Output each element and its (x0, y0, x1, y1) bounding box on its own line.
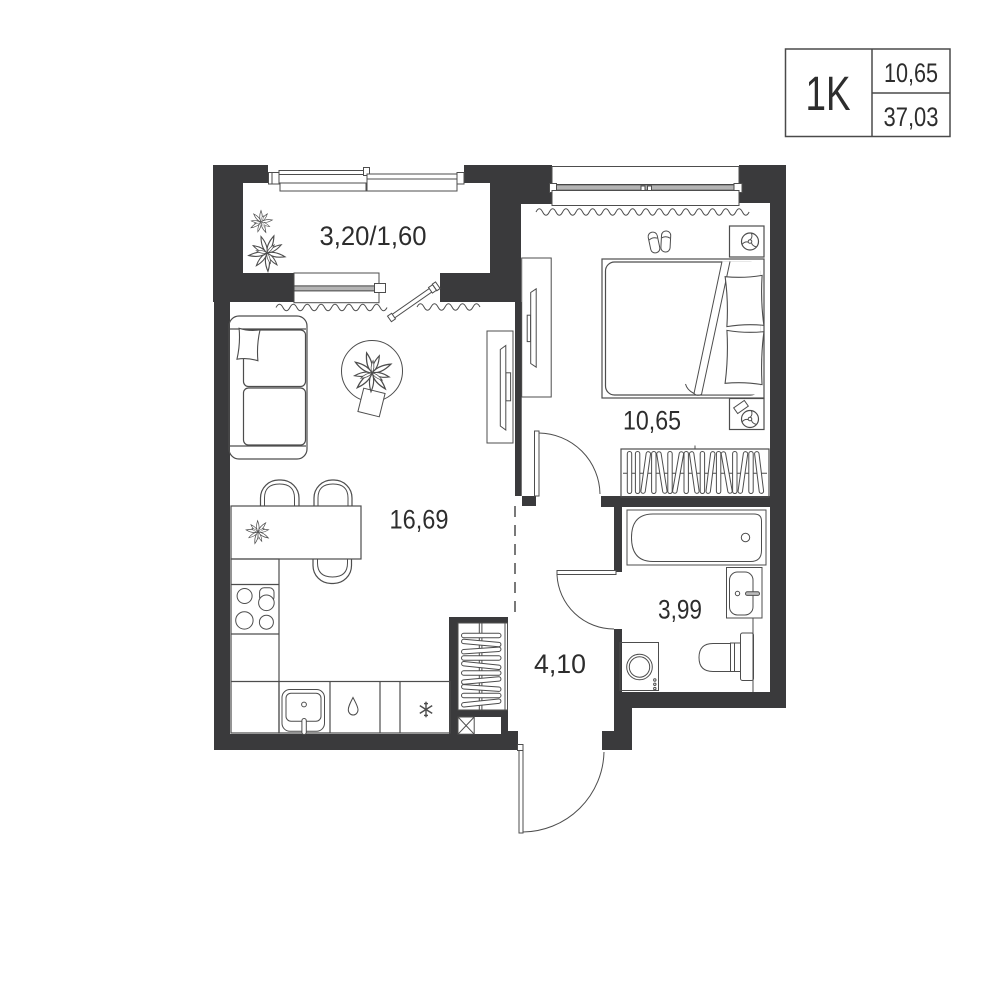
svg-text:3,99: 3,99 (658, 595, 702, 625)
svg-text:10,65: 10,65 (884, 58, 938, 88)
svg-text:4,10: 4,10 (534, 649, 586, 679)
svg-text:1K: 1K (806, 68, 851, 121)
svg-text:3,20/1,60: 3,20/1,60 (320, 221, 427, 251)
svg-text:37,03: 37,03 (884, 102, 939, 132)
svg-text:16,69: 16,69 (390, 505, 449, 535)
svg-text:10,65: 10,65 (623, 406, 681, 436)
